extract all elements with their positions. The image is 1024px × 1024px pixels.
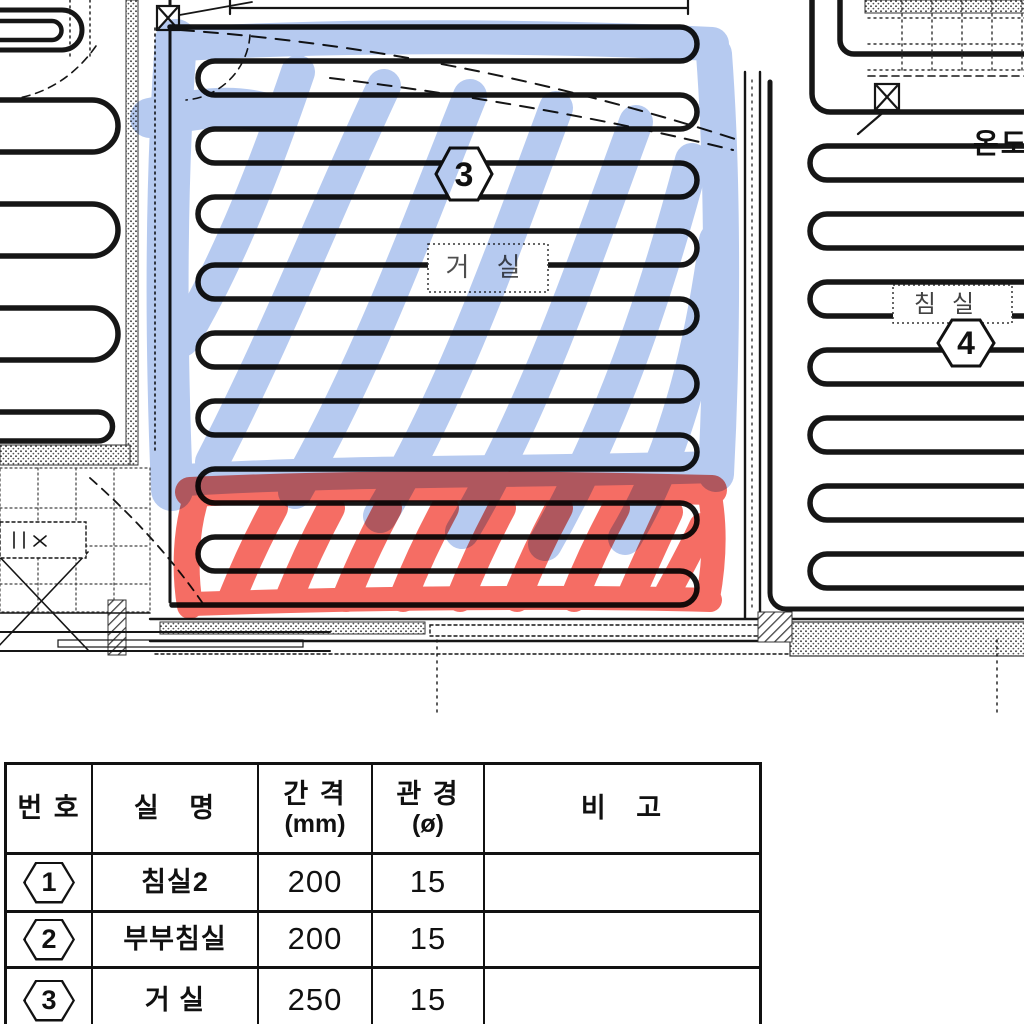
row-1-diameter: 15: [373, 855, 485, 913]
table-row-3-badge: 3: [7, 969, 93, 1024]
row-3-diameter: 15: [373, 969, 485, 1024]
bedroom-label: 침실: [914, 291, 990, 318]
row-2-diameter: 15: [373, 913, 485, 969]
table-row-2-badge: 2: [7, 913, 93, 969]
col-header-room-name: 실 명: [93, 765, 259, 855]
row-number: 3: [23, 980, 75, 1022]
col-header-spacing: 간 격 (mm): [259, 765, 373, 855]
table-row-1-badge: 1: [7, 855, 93, 913]
row-3-spacing: 250: [259, 969, 373, 1024]
row-1-remarks: [485, 855, 759, 913]
row-3-remarks: [485, 969, 759, 1024]
valve-icon: [858, 84, 899, 134]
diameter-header-label: 관 경: [396, 780, 459, 808]
small-label-box: [0, 522, 86, 558]
row-2-spacing: 200: [259, 913, 373, 969]
door-symbol: [0, 552, 88, 650]
col-header-number: 번 호: [7, 765, 93, 855]
floor-plan-drawing: 거 실 3 침실 4 온도: [0, 0, 1024, 760]
hexagon-badge: 1: [23, 862, 75, 904]
row-1-room: 침실2: [93, 855, 259, 913]
marker-bedroom: 4: [938, 320, 994, 366]
row-3-room: 거 실: [93, 969, 259, 1024]
row-number: 1: [23, 862, 75, 904]
pipe-schedule-table: 번 호 실 명 간 격 (mm) 관 경 (ø) 비 고 1 침실2 200 1…: [4, 762, 762, 1024]
room-label-bedroom: 침실: [893, 285, 1012, 323]
hexagon-badge: 3: [23, 980, 75, 1022]
spacing-header-label: 간 격: [283, 780, 346, 808]
row-1-spacing: 200: [259, 855, 373, 913]
thermostat-label: 온도: [973, 128, 1024, 159]
scanned-floor-heating-plan: 거 실 3 침실 4 온도: [0, 0, 1024, 1024]
row-number: 2: [23, 919, 75, 961]
spacing-header-unit: (mm): [284, 811, 345, 837]
row-2-room: 부부침실: [93, 913, 259, 969]
row-2-remarks: [485, 913, 759, 969]
col-header-diameter: 관 경 (ø): [373, 765, 485, 855]
bedroom-marker-number: 4: [957, 325, 975, 361]
diameter-header-unit: (ø): [412, 811, 444, 837]
col-header-remarks: 비 고: [485, 765, 759, 855]
hexagon-badge: 2: [23, 919, 75, 961]
